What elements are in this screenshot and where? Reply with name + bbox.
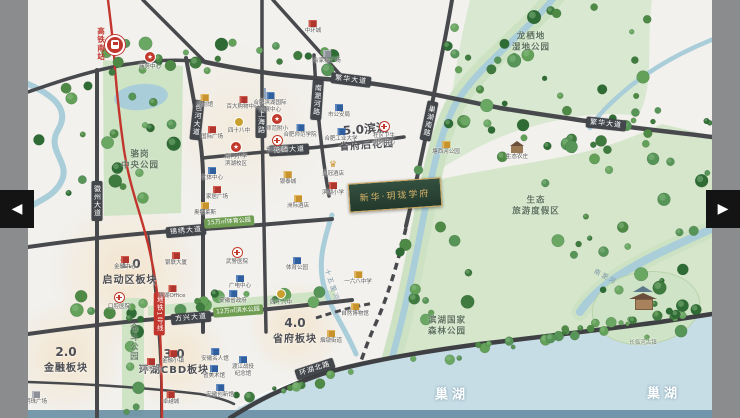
gold-icon bbox=[354, 271, 362, 278]
park-label: 金斗公园 bbox=[128, 323, 139, 361]
poi-label: 双创中心 bbox=[140, 366, 162, 373]
district-number: 4.0 bbox=[273, 317, 317, 330]
water-label: 十五里河 bbox=[323, 267, 343, 302]
water-label: 巢湖 bbox=[435, 384, 469, 403]
blue-icon bbox=[335, 104, 343, 111]
poi-marker: 明珠广场 bbox=[25, 379, 47, 406]
poi-label: 金融小镇 bbox=[162, 358, 184, 365]
poi-marker: 武警医院 bbox=[226, 239, 248, 266]
temple-icon bbox=[628, 286, 658, 308]
road-label: 徽州大道 bbox=[92, 181, 103, 221]
poi-label: 中环城 bbox=[305, 28, 322, 35]
park-area-badge: 15万㎡体育公园 bbox=[204, 215, 254, 228]
district-name: 金融板块 bbox=[44, 359, 88, 374]
poi-label: 合家福广场 bbox=[313, 58, 341, 65]
blue-icon bbox=[210, 365, 218, 372]
poi-marker: 双创中心 bbox=[140, 346, 162, 373]
poi-label: 省立医院 bbox=[266, 147, 288, 154]
poi-marker: 合肥师范学院 bbox=[283, 112, 316, 139]
poi-marker: 一六八中学 bbox=[344, 259, 372, 286]
road-label: 环湖北路 bbox=[294, 358, 335, 381]
goldc-icon bbox=[234, 117, 244, 127]
poi-marker: 洲际酒店 bbox=[287, 183, 309, 210]
road-label: 繁华大道 bbox=[586, 116, 627, 131]
poi-marker: 规划馆 bbox=[197, 82, 214, 109]
road-label: 锦绣大道 bbox=[166, 224, 207, 238]
chevron-right-icon: ▶ bbox=[718, 201, 729, 217]
poi-marker: 合肥工业大学 bbox=[324, 116, 357, 143]
park-area-badge: 12万㎡滨水公园 bbox=[213, 304, 263, 317]
poi-marker: 滨湖Office bbox=[158, 273, 185, 300]
red-icon bbox=[172, 252, 180, 259]
poi-marker: 银联大厦 bbox=[165, 240, 187, 267]
poi-label: 洲际酒店 bbox=[287, 203, 309, 210]
red-icon bbox=[167, 391, 175, 398]
district-label: 2.0金融板块 bbox=[44, 346, 88, 374]
poi-label: 合肥师范学院 bbox=[283, 132, 316, 139]
hosp-icon bbox=[271, 135, 282, 146]
poi-marker: 滨湖小学 bbox=[322, 170, 344, 197]
red-icon bbox=[208, 126, 216, 133]
poi-label: 安徽创新馆 bbox=[206, 392, 234, 399]
crown-icon: ♛ bbox=[329, 161, 337, 170]
poi-label: 社区卫生 服务中心 bbox=[373, 133, 395, 146]
poi-label: 滨湖小学 bbox=[322, 190, 344, 197]
poi-label: 塘西河公园 bbox=[432, 149, 460, 156]
poi-label: 四十六中 bbox=[270, 300, 292, 307]
gray-icon bbox=[32, 391, 40, 398]
poi-marker: 商务中心 bbox=[139, 44, 161, 71]
poi-marker: 四十六中 bbox=[270, 280, 292, 307]
poi-marker: 中环城 bbox=[305, 8, 322, 35]
district-number: 2.0 bbox=[44, 346, 88, 359]
map-overlay: 繁华大道繁华大道锦绣大道方兴大道花园大道环湖北路徽州大道包河大道上海路南淝河路巢… bbox=[0, 0, 740, 418]
red-icon bbox=[168, 285, 176, 292]
poi-marker: 烟墩街道 bbox=[320, 318, 342, 345]
star-icon bbox=[144, 51, 156, 63]
road-label: 繁华大道 bbox=[330, 72, 371, 88]
poi-marker: 南门小学 滨湖校区 bbox=[225, 134, 247, 167]
red-icon bbox=[121, 256, 129, 263]
poi-marker: 金融中心 bbox=[114, 244, 136, 271]
star-icon bbox=[271, 113, 283, 125]
poi-marker: 口腔医院 bbox=[108, 284, 130, 311]
red-icon bbox=[329, 182, 337, 189]
poi-marker: 合家福广场 bbox=[313, 38, 341, 65]
park-label: 龙栖地 湿地公园 bbox=[512, 31, 550, 52]
poi-label: 自然博物馆 bbox=[341, 311, 369, 318]
gray-icon bbox=[323, 50, 331, 57]
poi-label: 生态农庄 bbox=[506, 154, 528, 161]
gold-icon bbox=[442, 141, 450, 148]
water-label: 巢湖 bbox=[647, 383, 681, 402]
poi-label: 明珠广场 bbox=[25, 399, 47, 406]
red-icon bbox=[239, 96, 247, 103]
poi-marker: 体育公园 bbox=[286, 245, 308, 272]
project-marker: 新华·玥珑学府 bbox=[348, 177, 443, 212]
house-icon bbox=[511, 146, 523, 153]
poi-marker: 四十八中 bbox=[228, 108, 250, 135]
poi-label: 体育公园 bbox=[286, 265, 308, 272]
blue-icon bbox=[337, 128, 345, 135]
hosp-icon bbox=[113, 292, 124, 303]
hsr-station-label: 高铁南站 bbox=[96, 27, 107, 61]
park-label: 骆岗 中央公园 bbox=[121, 149, 159, 170]
poi-label: 合肥工业大学 bbox=[324, 136, 357, 143]
flag-icon bbox=[266, 92, 274, 99]
road-label: 方兴大道 bbox=[171, 311, 212, 325]
poi-label: 安徽省政府 bbox=[219, 298, 247, 305]
gold-icon bbox=[284, 171, 292, 178]
poi-marker: 国际广场 bbox=[201, 114, 223, 141]
poi-label: 一六八中学 bbox=[344, 279, 372, 286]
blue-icon bbox=[208, 167, 216, 174]
poi-label: 南门小学 滨湖校区 bbox=[225, 154, 247, 167]
poi-marker: 长临河古镇 bbox=[628, 286, 658, 347]
gold-icon bbox=[201, 202, 209, 209]
water-label: 南淝河 bbox=[592, 266, 619, 287]
gold-icon bbox=[201, 94, 209, 101]
poi-label: 卓越城 bbox=[163, 399, 180, 406]
red-icon bbox=[309, 20, 317, 27]
poi-marker: 自然博物馆 bbox=[341, 291, 369, 318]
gold-icon bbox=[294, 195, 302, 202]
poi-marker: 银泰城 bbox=[280, 159, 297, 186]
gold-icon bbox=[327, 330, 335, 337]
poi-label: 滨湖Office bbox=[158, 293, 185, 300]
red-icon bbox=[147, 358, 155, 365]
poi-marker: 社区卫生 服务中心 bbox=[373, 113, 395, 146]
red-icon bbox=[169, 350, 177, 357]
poi-label: 烟墩街道 bbox=[320, 338, 342, 345]
poi-marker: 安徽创新馆 bbox=[206, 372, 234, 399]
poi-marker: 省立医院 bbox=[266, 127, 288, 154]
poi-marker: 塘西河公园 bbox=[432, 129, 460, 156]
poi-marker: 安徽省政府 bbox=[219, 278, 247, 305]
poi-label: 奥特莱斯 bbox=[194, 210, 216, 217]
poi-label: 国际广场 bbox=[201, 134, 223, 141]
blue-icon bbox=[216, 384, 224, 391]
poi-marker: 渡江战役 纪念馆 bbox=[232, 344, 254, 377]
park-label: 生态 旅游度假区 bbox=[512, 195, 560, 216]
poi-label: 口腔医院 bbox=[108, 304, 130, 311]
hosp-icon bbox=[231, 247, 242, 258]
next-button[interactable]: ▶ bbox=[706, 190, 740, 228]
poi-label: 银联大厦 bbox=[165, 260, 187, 267]
district-label: 4.0省府板块 bbox=[273, 317, 317, 345]
poi-marker: 卓越城 bbox=[163, 379, 180, 406]
blue-icon bbox=[293, 257, 301, 264]
poi-label: 长临河古镇 bbox=[628, 340, 658, 347]
goldc-icon bbox=[276, 289, 286, 299]
blue-icon bbox=[229, 290, 237, 297]
park-label: 滨湖国家 森林公园 bbox=[428, 315, 466, 336]
chevron-left-icon: ◀ bbox=[12, 201, 23, 217]
prev-button[interactable]: ◀ bbox=[0, 190, 34, 228]
gold-icon bbox=[351, 303, 359, 310]
star-icon bbox=[230, 141, 242, 153]
poi-label: 渡江战役 纪念馆 bbox=[232, 364, 254, 377]
poi-label: 规划馆 bbox=[197, 102, 214, 109]
poi-marker: 市公安局 bbox=[328, 92, 350, 119]
district-name: 省府板块 bbox=[273, 330, 317, 345]
poi-label: 金融中心 bbox=[114, 264, 136, 271]
poi-label: 商务中心 bbox=[139, 64, 161, 71]
hosp-icon bbox=[378, 121, 389, 132]
poi-marker: 生态农庄 bbox=[506, 134, 528, 161]
train-station-icon bbox=[105, 35, 125, 55]
map-viewer: 繁华大道繁华大道锦绣大道方兴大道花园大道环湖北路徽州大道包河大道上海路南淝河路巢… bbox=[0, 0, 740, 418]
poi-marker: 金融小镇 bbox=[162, 338, 184, 365]
blue-icon bbox=[239, 356, 247, 363]
blue-icon bbox=[296, 124, 304, 131]
poi-marker: 奥特莱斯 bbox=[194, 190, 216, 217]
